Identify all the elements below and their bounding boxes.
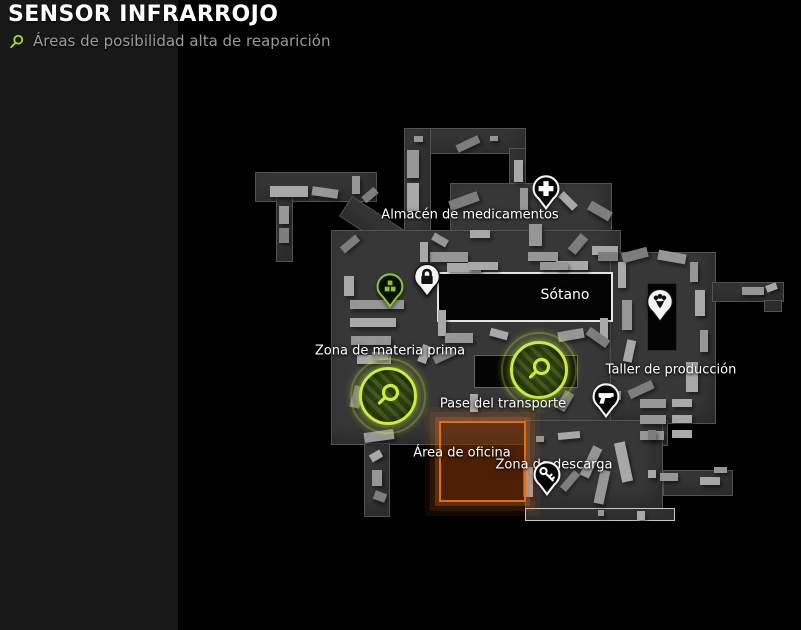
map-label-pase: Pase del transporte <box>440 397 566 412</box>
supply-crates-icon <box>376 273 404 308</box>
medical-cross-icon <box>532 175 560 210</box>
map-label-sotano: Sótano <box>541 287 590 303</box>
lock-pin <box>413 263 441 298</box>
magnifier-icon <box>524 355 554 385</box>
lock-icon <box>413 263 441 298</box>
key-icon <box>533 461 561 496</box>
map-canvas[interactable]: Almacén de medicamentosSótanoZona de mat… <box>0 0 801 630</box>
production-marker-icon <box>646 288 674 323</box>
hotspot-pase-transporte <box>510 341 568 399</box>
production-pin <box>646 288 674 323</box>
map-label-materia: Zona de materia prima <box>315 344 465 359</box>
gun-pin <box>592 383 620 418</box>
header: SENSOR INFRARROJO Áreas de posibilidad a… <box>8 2 330 50</box>
legend-row: Áreas de posibilidad alta de reaparición <box>8 32 330 50</box>
magnifier-icon <box>373 381 403 411</box>
medical-pin <box>532 175 560 210</box>
hotspot-materia-prima <box>359 367 417 425</box>
pistol-icon <box>592 383 620 418</box>
key-pin <box>533 461 561 496</box>
crate-pin <box>376 273 404 308</box>
marker-layer: Almacén de medicamentosSótanoZona de mat… <box>0 0 801 630</box>
legend-label: Áreas de posibilidad alta de reaparición <box>33 32 330 50</box>
map-label-taller: Taller de producción <box>606 363 737 378</box>
magnifier-icon <box>8 33 25 50</box>
page-title: SENSOR INFRARROJO <box>8 2 330 27</box>
